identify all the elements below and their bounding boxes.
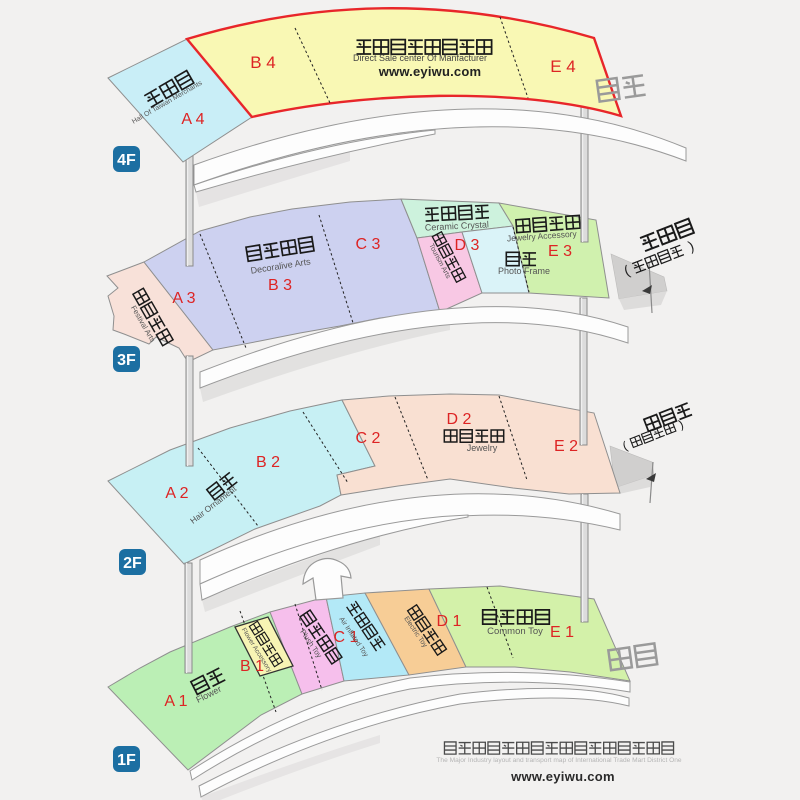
svg-text:A 1: A 1 [164,693,187,710]
svg-text:The Major Industry layout and: The Major Industry layout and transport … [436,757,682,764]
svg-text:E 3: E 3 [548,243,572,260]
svg-text:A 2: A 2 [165,485,188,502]
svg-text:D 2: D 2 [447,411,472,428]
svg-text:D 1: D 1 [437,613,462,630]
svg-text:E 4: E 4 [550,57,576,76]
svg-text:E 2: E 2 [554,438,578,455]
svg-text:A 4: A 4 [181,111,204,128]
svg-text:4F: 4F [117,152,136,169]
svg-text:C 2: C 2 [356,430,381,447]
svg-text:Photo Frame: Photo Frame [498,266,550,276]
svg-text:C 3: C 3 [356,236,381,253]
svg-text:A 3: A 3 [172,290,195,307]
svg-text:D 3: D 3 [455,237,480,254]
svg-text:1F: 1F [117,752,136,769]
svg-text:B 2: B 2 [256,454,280,471]
svg-text:Direct Sale center Of Manfactu: Direct Sale center Of Manfacturer [353,53,487,63]
svg-text:www.eyiwu.com: www.eyiwu.com [510,769,615,784]
svg-text:www.eyiwu.com: www.eyiwu.com [378,64,482,79]
svg-text:2F: 2F [123,555,142,572]
svg-text:B 4: B 4 [250,53,276,72]
svg-text:3F: 3F [117,352,136,369]
svg-text:Jewelry: Jewelry [467,443,498,453]
svg-text:B 3: B 3 [268,277,292,294]
svg-text:E 1: E 1 [550,624,574,641]
svg-text:Common Toy: Common Toy [487,626,543,637]
